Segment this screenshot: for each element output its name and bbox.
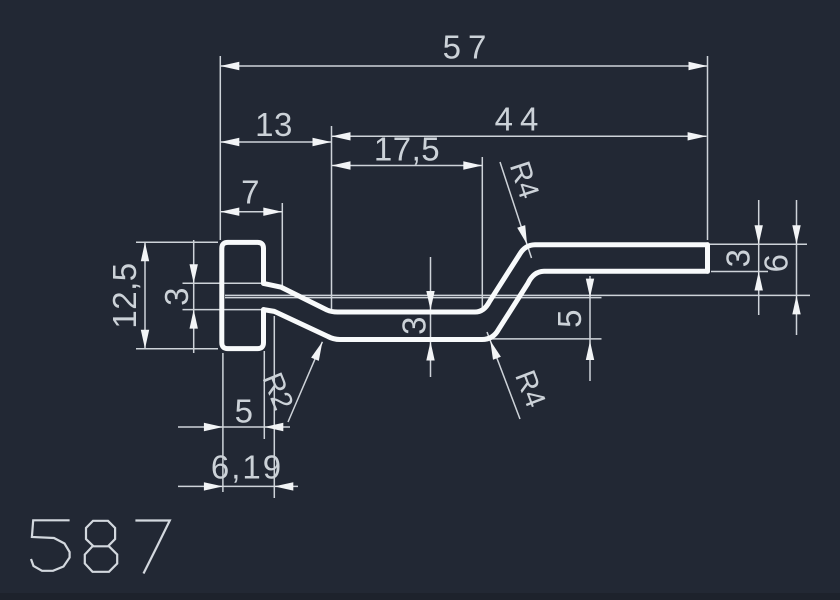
svg-text:3: 3 — [158, 287, 195, 306]
svg-text:R4: R4 — [503, 158, 545, 203]
svg-text:17,5: 17,5 — [374, 131, 440, 168]
svg-text:R2: R2 — [255, 368, 299, 414]
svg-text:5: 5 — [551, 309, 588, 328]
svg-text:13: 13 — [255, 106, 293, 143]
svg-text:57: 57 — [443, 29, 494, 66]
svg-text:5: 5 — [235, 393, 254, 430]
svg-text:44: 44 — [495, 101, 546, 138]
svg-text:3: 3 — [720, 249, 757, 268]
svg-text:7: 7 — [241, 174, 260, 211]
svg-text:6,19: 6,19 — [211, 449, 283, 486]
svg-text:6: 6 — [758, 254, 795, 273]
svg-text:12,5: 12,5 — [106, 262, 143, 328]
svg-text:3: 3 — [396, 316, 433, 335]
